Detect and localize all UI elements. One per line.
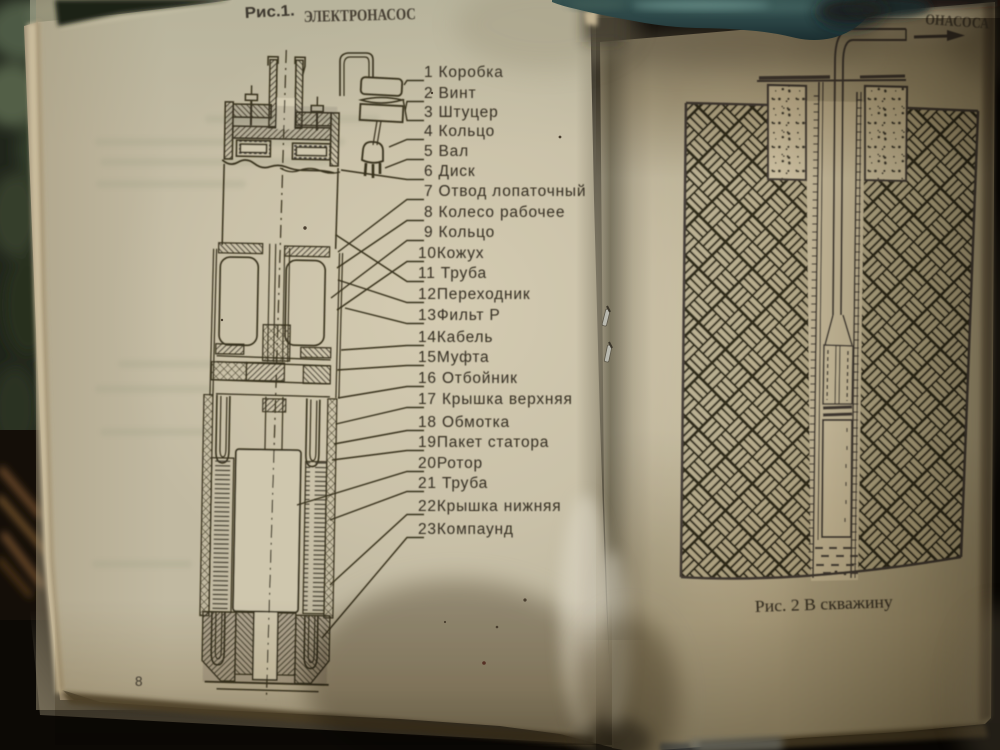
svg-text:23Компаунд: 23Компаунд [418, 521, 514, 538]
svg-text:9 Кольцо: 9 Кольцо [424, 224, 495, 241]
svg-text:18 Обмотка: 18 Обмотка [418, 414, 510, 431]
svg-text:6 Диск: 6 Диск [424, 163, 475, 180]
svg-text:5 Вал: 5 Вал [424, 143, 469, 160]
svg-text:3 Штуцер: 3 Штуцер [424, 104, 499, 121]
svg-text:13Фильт Р: 13Фильт Р [418, 307, 501, 324]
svg-text:15Муфта: 15Муфта [418, 349, 489, 366]
svg-text:Рис.1.: Рис.1. [244, 2, 295, 22]
svg-text:4 Кольцо: 4 Кольцо [424, 123, 495, 140]
svg-text:10Кожух: 10Кожух [418, 245, 484, 262]
svg-text:22Крышка нижняя: 22Крышка нижняя [418, 498, 561, 515]
svg-text:21 Труба: 21 Труба [418, 475, 488, 492]
svg-text:16 Отбойник: 16 Отбойник [418, 370, 518, 387]
svg-text:11 Труба: 11 Труба [418, 265, 487, 282]
svg-text:17 Крышка верхняя: 17 Крышка верхняя [418, 391, 573, 408]
svg-text:8 Колесо рабочее: 8 Колесо рабочее [424, 204, 565, 221]
svg-text:7 Отвод лопаточный: 7 Отвод лопаточный [424, 183, 586, 200]
svg-text:12Переходник: 12Переходник [418, 286, 530, 303]
svg-text:20Ротор: 20Ротор [418, 455, 483, 472]
svg-text:14Кабель: 14Кабель [418, 329, 493, 346]
svg-text:1 Коробка: 1 Коробка [424, 64, 504, 81]
svg-text:19Пакет статора: 19Пакет статора [418, 434, 549, 451]
svg-text:ЭЛЕКТРОНАСОС: ЭЛЕКТРОНАСОС [304, 4, 416, 26]
